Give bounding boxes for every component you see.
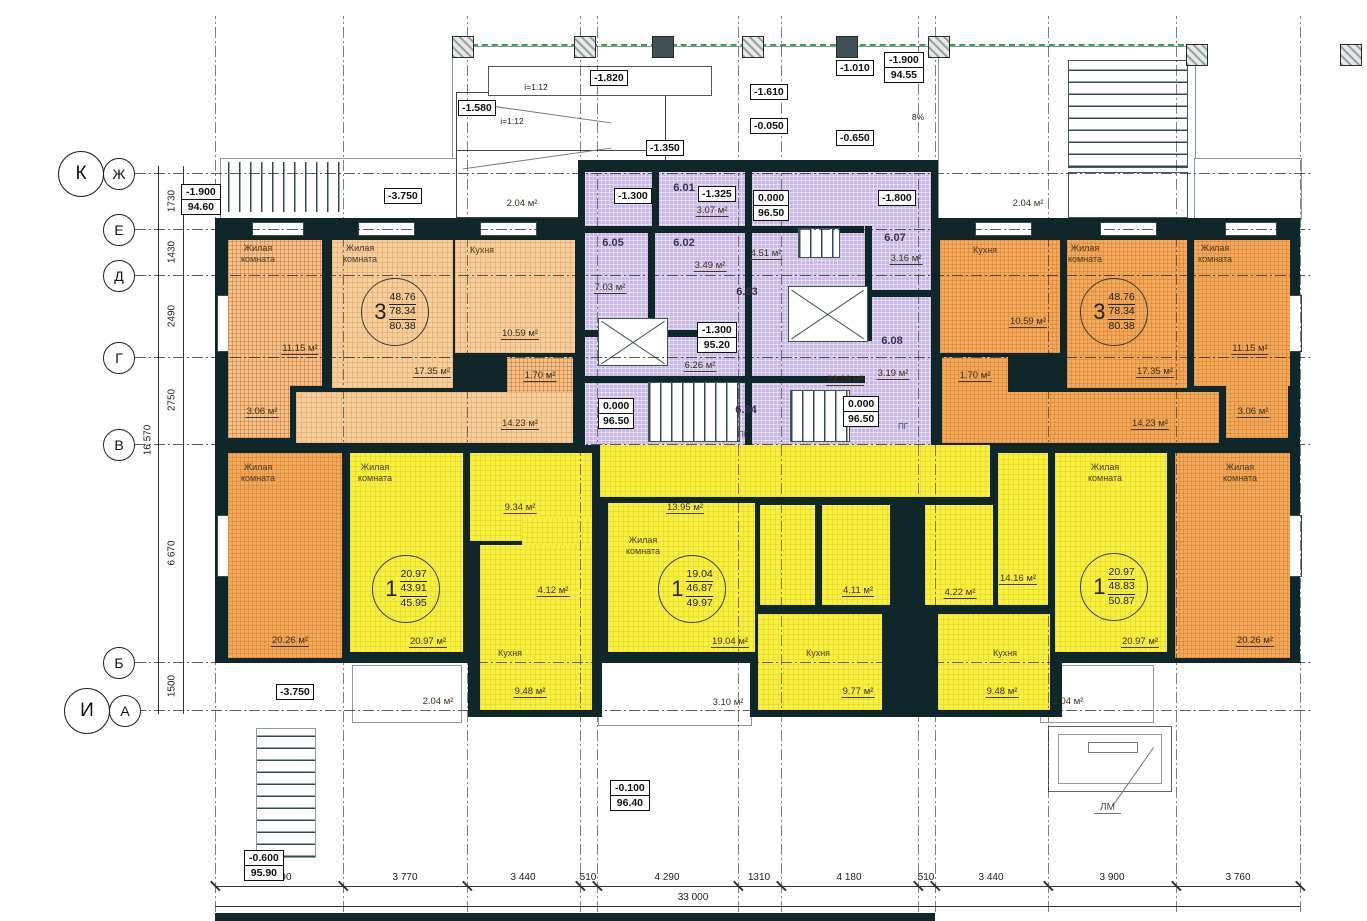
- stamp-v3: 50.87: [1108, 595, 1134, 608]
- stamp-v1: 48.76: [1108, 291, 1134, 305]
- area-602: 3.49 м²: [694, 260, 727, 272]
- elev-1580: -1.580: [458, 100, 496, 116]
- elev-value: 94.60: [182, 200, 220, 214]
- label-tl-living-main: Жилая комната: [343, 243, 377, 265]
- column-5: [836, 36, 858, 58]
- core-wall-3: [652, 172, 659, 226]
- dim-bottom-7: 4 180: [836, 872, 861, 883]
- area-tl-hall: 17.35 м²: [413, 366, 451, 378]
- column-7: [1186, 44, 1208, 66]
- stamp-rooms: 1: [1093, 574, 1105, 600]
- axis-col-4: [580, 16, 581, 912]
- room-tr-kitchen: [940, 240, 1060, 353]
- slope-ramp-2: i=1:12: [500, 116, 523, 126]
- dim-left-4: 2750: [167, 389, 178, 411]
- elev-1010: -1.010: [836, 60, 874, 76]
- area-core-corr1: 4.51 м²: [750, 248, 783, 260]
- axis-line-b: [135, 662, 1310, 663]
- area-tl-corridor: 14.23 м²: [501, 418, 539, 430]
- dim-left-5: 6 670: [167, 540, 178, 565]
- label-bl-living: Жилая комната: [358, 462, 392, 484]
- elev-value: 96.50: [844, 412, 878, 426]
- roomnum-607: 6.07: [884, 232, 905, 244]
- area-tl-wc: 1.70 м²: [524, 370, 557, 382]
- elev-core-mid: -1.30095.20: [697, 322, 737, 353]
- elev-1610: -1.610: [750, 84, 788, 100]
- area-tr-wc: 1.70 м²: [959, 370, 992, 382]
- dim-bottom-3: 3 440: [510, 872, 535, 883]
- core-wall-8: [865, 290, 931, 297]
- stamp-rooms: 1: [385, 576, 397, 602]
- stamp-apt-tr: 348.7678.3480.38: [1080, 278, 1148, 346]
- axis-label-v: В: [114, 437, 123, 453]
- outdoor-stair-bottom-left: [256, 728, 316, 858]
- axis-bubble-a: А: [109, 695, 141, 727]
- core-stair-left: [648, 382, 740, 442]
- elev-value: -1.900: [182, 185, 220, 200]
- roomnum-604: 6.04: [735, 404, 756, 416]
- area-bl-living: 20.97 м²: [409, 636, 447, 648]
- stamp-v1: 19.04: [686, 568, 712, 582]
- dim-bottom-11: 3 760: [1225, 872, 1250, 883]
- elev-3750-bottom: -3.750: [276, 684, 314, 700]
- axis-bubble-i: И: [64, 688, 110, 734]
- elev-value: 96.40: [611, 796, 649, 810]
- elev-value: 94.55: [885, 68, 923, 82]
- area-bc-balcony: 3.10 м²: [712, 697, 745, 708]
- axis-bubble-e: Е: [103, 214, 135, 246]
- axis-line-e: [135, 229, 1310, 230]
- room-bc-hall: [600, 445, 990, 497]
- elev-front: -0.10096.40: [610, 780, 650, 811]
- label-br-kitchen: Кухня: [993, 648, 1017, 659]
- axis-col-3: [467, 16, 468, 912]
- area-tr-corridor: 14.23 м²: [1131, 418, 1169, 430]
- elev-top-right: -1.90094.55: [884, 52, 924, 83]
- elev-value: -1.300: [698, 323, 736, 338]
- axis-col-11: [1176, 16, 1177, 912]
- axis-label-b: Б: [114, 655, 123, 671]
- label-bc-living: Жилая комната: [626, 535, 660, 557]
- stair-top-right: [1068, 60, 1188, 168]
- area-tl-balcony: 2.04 м²: [506, 198, 539, 209]
- dim-left-2: 1430: [167, 241, 178, 263]
- axis-line-d: [135, 275, 1310, 276]
- area-tr-balcony: 2.04 м²: [1012, 198, 1045, 209]
- elev-entry-top: 0.00096.50: [753, 190, 789, 221]
- area-bl-room: 20.26 м²: [271, 635, 309, 647]
- area-608: 3.19 м²: [877, 368, 910, 380]
- axis-bubble-g: Г: [103, 342, 135, 374]
- area-bl-balcony: 2.04 м²: [422, 696, 455, 707]
- axis-line-zh: [135, 173, 1310, 174]
- elev-1300: -1.300: [614, 188, 652, 204]
- axis-label-e: Е: [114, 222, 123, 238]
- area-bl-bath: 4.12 м²: [537, 585, 570, 597]
- stamp-v1: 48.76: [389, 291, 415, 305]
- core-stair-top: [798, 228, 840, 258]
- balcony-strip-top-right: [1194, 158, 1302, 220]
- elev-value: 0.000: [754, 191, 788, 206]
- slope-ramp-1: i=1:12: [524, 82, 547, 92]
- elev-stair-bottom-left: -0.60095.90: [244, 850, 284, 881]
- elev-value: -0.100: [611, 781, 649, 796]
- dim-line-left-segments: [183, 166, 184, 714]
- balcony-bottom-left: [352, 665, 462, 723]
- elev-3750-top: -3.750: [384, 188, 422, 204]
- area-core-corr2: 6.26 м²: [684, 360, 717, 372]
- axis-col-1: [215, 16, 216, 912]
- label-br-living: Жилая комната: [1088, 462, 1122, 484]
- slope-percent: 8%: [912, 112, 924, 122]
- column-4: [742, 36, 764, 58]
- axis-line-g: [135, 357, 1310, 358]
- area-tr-hall: 17.35 м²: [1136, 366, 1174, 378]
- dim-bottom-10: 3 900: [1099, 872, 1124, 883]
- area-tr-bath: 3.06 м²: [1237, 406, 1270, 418]
- elev-1800: -1.800: [878, 190, 916, 206]
- stamp-apt-bl: 120.9743.9145.95: [372, 555, 440, 623]
- area-core-corr3: 22.26 м²: [826, 374, 864, 386]
- area-601: 3.07 м²: [696, 205, 729, 217]
- area-605: 7.03 м²: [594, 282, 627, 294]
- elev-value: 95.90: [245, 866, 283, 880]
- elevator-shaft-2: [788, 286, 868, 342]
- axis-bubble-k: К: [58, 151, 104, 197]
- elev-value: -0.600: [245, 851, 283, 866]
- column-6: [928, 36, 950, 58]
- dim-line-left-total: [158, 166, 159, 714]
- elev-value: 96.50: [599, 414, 633, 428]
- area-bl-kitchen: 9.48 м²: [514, 686, 547, 698]
- mark-pg-1: ПГ: [738, 430, 748, 439]
- elev-value: 0.000: [599, 399, 633, 414]
- area-tr-room-small: 11.15 м²: [1231, 343, 1268, 355]
- area-tl-bath: 3.06 м²: [246, 406, 279, 418]
- stamp-v3: 80.38: [389, 320, 415, 333]
- axis-col-8: [918, 16, 919, 912]
- elev-top-left: -1.90094.60: [181, 184, 221, 215]
- elev-value: -1.900: [885, 53, 923, 68]
- dim-line-bottom-segments: [215, 886, 1300, 887]
- dim-bottom-2: 3 770: [392, 872, 417, 883]
- area-tr-kitchen: 10.59 м²: [1009, 316, 1047, 328]
- axis-bubble-zh: Ж: [103, 158, 135, 190]
- stamp-apt-bc: 119.0446.8749.97: [658, 555, 726, 623]
- stair-top-right-landing: [1068, 172, 1188, 218]
- elev-0050: -0.050: [750, 118, 788, 134]
- axis-label-k: К: [75, 163, 86, 185]
- area-br-room: 20.26 м²: [1236, 635, 1274, 647]
- stamp-v2: 43.91: [400, 582, 426, 596]
- dim-left-6: 1500: [167, 675, 178, 697]
- stamp-v2: 78.34: [389, 305, 415, 319]
- dim-left-3: 2490: [167, 305, 178, 327]
- axis-label-d: Д: [114, 268, 123, 284]
- stamp-apt-tl: 348.7678.3480.38: [361, 278, 429, 346]
- dim-bottom-5: 4 290: [654, 872, 679, 883]
- stamp-v2: 78.34: [1108, 305, 1134, 319]
- area-bc-kitchen: 9.77 м²: [842, 686, 875, 698]
- dim-left-total: 16 570: [143, 425, 154, 456]
- area-bc-living: 19.04 м²: [711, 636, 749, 648]
- axis-label-g: Г: [115, 350, 123, 366]
- area-br-balcony: 2.04 м²: [1052, 696, 1085, 707]
- label-bc-kitchen: Кухня: [806, 648, 830, 659]
- area-br-hall: 14.16 м²: [999, 573, 1037, 585]
- stamp-v2: 48.83: [1108, 580, 1134, 594]
- axis-col-5: [597, 16, 598, 912]
- label-tl-kitchen: Кухня: [470, 245, 494, 256]
- axis-bubble-b: Б: [103, 647, 135, 679]
- sheet-bottom-bar: [215, 913, 935, 921]
- stamp-v3: 80.38: [1108, 320, 1134, 333]
- core-wall-4: [745, 172, 752, 322]
- axis-line-a: [135, 710, 1310, 711]
- roomnum-608: 6.08: [881, 335, 902, 347]
- area-bc-hall: 13.95 м²: [666, 502, 704, 514]
- area-bc-bath1: 4.11 м²: [842, 585, 874, 597]
- area-bc-bath2: 4.22 м²: [944, 587, 977, 599]
- label-tr-living-main: Жилая комната: [1068, 243, 1102, 265]
- area-br-kitchen: 9.48 м²: [986, 686, 1019, 698]
- elevator-shaft-1: [598, 318, 668, 366]
- elev-value: 95.20: [698, 338, 736, 352]
- roomnum-601: 6.01: [673, 182, 694, 194]
- dim-bottom-total: 33 000: [678, 892, 709, 903]
- area-607: 3.16 м²: [890, 253, 923, 265]
- elev-1820: -1.820: [590, 70, 628, 86]
- axis-bubble-v: В: [103, 429, 135, 461]
- label-tr-kitchen: Кухня: [973, 245, 997, 256]
- ramp-divider: [456, 150, 664, 151]
- stamp-rooms: 3: [374, 299, 386, 325]
- column-1: [452, 36, 474, 58]
- elev-0650: -0.650: [836, 130, 874, 146]
- axis-label-a: А: [120, 703, 129, 719]
- floor-plan-sheet: К Ж Е Д Г В Б И А 1730 1430 2490 2750 6 …: [0, 0, 1367, 921]
- axis-col-6: [738, 16, 739, 912]
- stamp-v1: 20.97: [400, 568, 426, 582]
- room-br-orange: [1175, 453, 1290, 658]
- column-8: [1340, 44, 1362, 66]
- mark-pg-2: ПГ: [898, 422, 908, 431]
- room-bl-orange: [228, 453, 342, 658]
- core-stair-right: [790, 390, 850, 442]
- mark-lm: ЛМ: [1094, 802, 1121, 814]
- axis-bubble-d: Д: [103, 260, 135, 292]
- dim-bottom-6: 1310: [748, 872, 770, 883]
- elev-1325: -1.325: [698, 186, 736, 202]
- room-tr-corridor: [942, 392, 1219, 443]
- label-tr-living-small: Жилая комната: [1198, 243, 1232, 265]
- dim-left-1: 1730: [167, 190, 178, 212]
- dim-bottom-8: 510: [918, 872, 935, 883]
- site-boundary-line: [452, 44, 1194, 46]
- axis-col-9: [935, 16, 936, 912]
- elev-value: 0.000: [844, 397, 878, 412]
- label-bl-orange-living: Жилая комната: [241, 462, 275, 484]
- stamp-v2: 46.87: [686, 582, 712, 596]
- label-tl-living-small: Жилая комната: [241, 243, 275, 265]
- axis-col-2: [343, 16, 344, 912]
- elev-value: 96.50: [754, 206, 788, 220]
- column-2: [574, 36, 596, 58]
- roomnum-602: 6.02: [673, 237, 694, 249]
- axis-label-zh: Ж: [113, 166, 126, 182]
- elev-entry-bottom-right: 0.00096.50: [843, 396, 879, 427]
- area-tl-room-small: 11.15 м²: [281, 343, 318, 355]
- ladder-mark: [1088, 742, 1138, 753]
- core-wall-10: [745, 322, 752, 445]
- stamp-v3: 45.95: [400, 597, 426, 610]
- balcony-bottom-center: [598, 658, 752, 726]
- label-bl-kitchen: Кухня: [498, 648, 522, 659]
- area-tl-kitchen: 10.59 м²: [501, 328, 539, 340]
- axis-col-7: [781, 16, 782, 912]
- terrace-top-left-steps: [228, 162, 346, 212]
- roomnum-605: 6.05: [602, 237, 623, 249]
- area-bl-hall: 9.34 м²: [504, 502, 537, 514]
- stamp-apt-br: 120.9748.8350.87: [1080, 553, 1148, 621]
- column-3: [652, 36, 674, 58]
- dim-line-bottom-total: [215, 906, 1300, 907]
- axis-line-v: [135, 444, 1310, 445]
- roomnum-603: 6.03: [736, 286, 757, 298]
- stamp-v3: 49.97: [686, 597, 712, 610]
- axis-col-10: [1048, 16, 1049, 912]
- axis-label-i: И: [80, 700, 94, 722]
- stamp-v1: 20.97: [1108, 566, 1134, 580]
- room-bc-corridor: [760, 505, 815, 605]
- label-br-orange-living: Жилая комната: [1223, 462, 1257, 484]
- elev-entry-bottom-left: 0.00096.50: [598, 398, 634, 429]
- elev-1350: -1.350: [646, 140, 684, 156]
- stamp-rooms: 1: [671, 576, 683, 602]
- dim-bottom-4: 510: [580, 872, 597, 883]
- stamp-rooms: 3: [1093, 299, 1105, 325]
- axis-col-12: [1300, 16, 1301, 912]
- area-br-living: 20.97 м²: [1121, 636, 1159, 648]
- dim-bottom-9: 3 440: [978, 872, 1003, 883]
